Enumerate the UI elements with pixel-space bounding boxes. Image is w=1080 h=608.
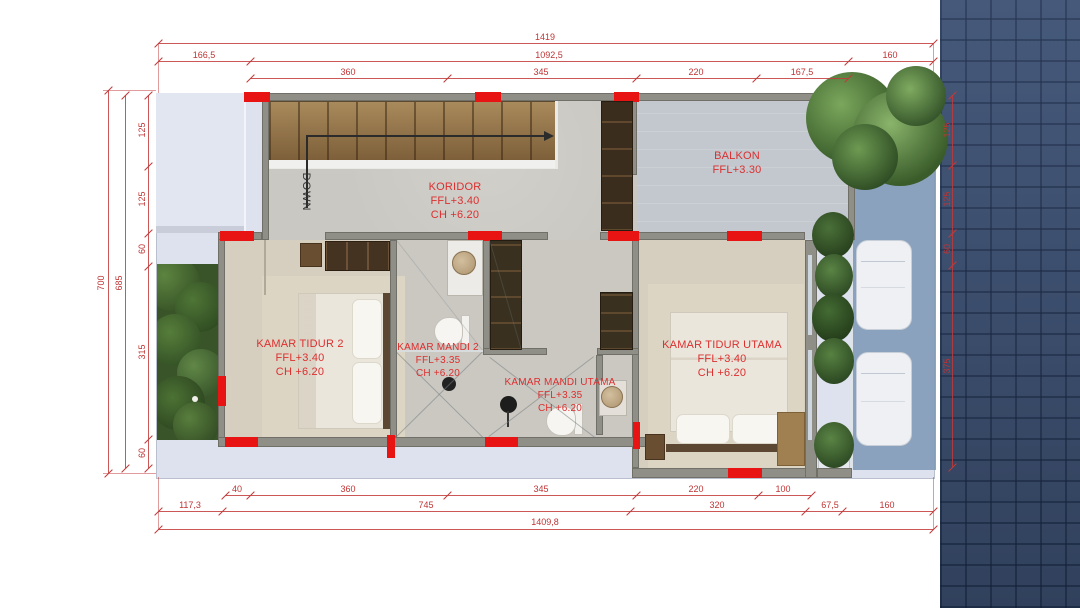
column-marker bbox=[244, 92, 270, 102]
dim-label: 1092,5 bbox=[535, 50, 563, 60]
dim-line bbox=[148, 95, 149, 468]
wall-bd2-bath bbox=[390, 240, 397, 437]
stair-down-label: DOWN bbox=[300, 170, 312, 214]
dim-line bbox=[108, 90, 109, 473]
dim-label: 125 bbox=[137, 191, 147, 206]
dim-extension bbox=[933, 477, 934, 529]
dim-label: 360 bbox=[340, 67, 355, 77]
door-leaf-bedroom2 bbox=[264, 240, 266, 295]
dim-extension bbox=[103, 473, 156, 474]
dim-label: 1409,8 bbox=[531, 517, 559, 527]
dim-line bbox=[158, 529, 933, 530]
tree-canopy bbox=[832, 124, 898, 190]
master-bench bbox=[777, 412, 805, 466]
dim-label: 360 bbox=[340, 484, 355, 494]
column-marker bbox=[225, 437, 258, 447]
dim-label: 320 bbox=[709, 500, 724, 510]
dim-line bbox=[158, 511, 933, 512]
dim-label: 117,3 bbox=[179, 500, 201, 510]
wall-stairs-left bbox=[262, 97, 269, 240]
dim-label: 60 bbox=[137, 244, 147, 254]
room-label-balkon: BALKONFFL+3.30 bbox=[677, 149, 797, 177]
column-marker bbox=[220, 231, 254, 241]
dim-label: 685 bbox=[114, 275, 124, 290]
column-marker bbox=[218, 376, 226, 406]
bedroom2-nightstand bbox=[300, 243, 322, 267]
dim-label: 125 bbox=[942, 122, 952, 137]
dim-label: 167,5 bbox=[791, 67, 814, 77]
bath2-basin bbox=[452, 251, 476, 275]
dim-line bbox=[158, 61, 933, 62]
bedroom2-wardrobe bbox=[325, 241, 390, 271]
column-marker bbox=[387, 435, 395, 458]
dim-label: 375 bbox=[942, 358, 952, 373]
dim-label: 125 bbox=[942, 191, 952, 206]
dim-line bbox=[225, 495, 811, 496]
pool-stone-tiles bbox=[940, 0, 1080, 608]
column-marker bbox=[728, 468, 762, 478]
wall-bottom-left bbox=[218, 437, 650, 447]
dim-label: 315 bbox=[137, 344, 147, 359]
wall-top bbox=[244, 93, 855, 101]
dim-label: 160 bbox=[882, 50, 897, 60]
dim-label: 700 bbox=[96, 275, 106, 290]
closet-2 bbox=[600, 292, 633, 350]
dim-label: 125 bbox=[137, 122, 147, 137]
column-marker bbox=[475, 92, 501, 102]
master-pillow bbox=[676, 414, 730, 444]
dim-label: 160 bbox=[879, 500, 894, 510]
stair-arrowhead bbox=[544, 131, 554, 141]
floor-plan-canvas: DOWN bbox=[0, 0, 1080, 608]
room-label-kamar-mandi-2: KAMAR MANDI 2FFL+3.35CH +6.20 bbox=[375, 341, 501, 380]
pool-hedge bbox=[812, 176, 854, 468]
dim-line bbox=[158, 43, 933, 44]
dim-label: 166,5 bbox=[193, 50, 216, 60]
dim-label: 67,5 bbox=[821, 500, 839, 510]
dim-label: 60 bbox=[942, 244, 952, 254]
wall-master-bottom bbox=[632, 468, 817, 478]
dim-label: 220 bbox=[688, 484, 703, 494]
column-marker bbox=[633, 422, 640, 449]
pool-lounger bbox=[856, 352, 912, 446]
dim-label: 345 bbox=[533, 67, 548, 77]
dim-label: 100 bbox=[775, 484, 790, 494]
dim-label: 220 bbox=[688, 67, 703, 77]
deck-upper-left bbox=[156, 93, 246, 232]
wall-mid-b bbox=[325, 232, 548, 240]
room-label-kamar-mandi-utama: KAMAR MANDI UTAMAFFL+3.35CH +6.20 bbox=[475, 376, 645, 415]
tree-canopy bbox=[886, 66, 946, 126]
koridor-cabinet bbox=[601, 101, 633, 231]
garden-light-dot bbox=[192, 396, 198, 402]
master-headboard bbox=[666, 444, 792, 452]
dim-extension bbox=[933, 43, 934, 93]
room-label-kamar-tidur-2: KAMAR TIDUR 2FFL+3.40CH +6.20 bbox=[215, 337, 385, 379]
dim-label: 60 bbox=[137, 448, 147, 458]
column-marker bbox=[485, 437, 518, 447]
room-label-koridor: KORIDORFFL+3.40CH +6.20 bbox=[385, 180, 525, 222]
dim-label: 745 bbox=[418, 500, 433, 510]
stair-arrow-horizontal bbox=[306, 135, 544, 137]
left-garden bbox=[157, 264, 222, 440]
wall-planter-bottom bbox=[817, 468, 852, 478]
staircase bbox=[266, 97, 558, 169]
dim-line bbox=[250, 78, 848, 79]
dim-label: 1419 bbox=[535, 32, 555, 42]
column-marker bbox=[727, 231, 762, 241]
dim-line bbox=[125, 95, 126, 468]
pool-lounger bbox=[856, 240, 912, 330]
dim-line bbox=[952, 95, 953, 467]
column-marker bbox=[608, 231, 639, 241]
dim-extension bbox=[158, 477, 159, 529]
dim-extension bbox=[158, 43, 159, 93]
dim-label: 345 bbox=[533, 484, 548, 494]
room-label-kamar-tidur-utama: KAMAR TIDUR UTAMAFFL+3.40CH +6.20 bbox=[637, 338, 807, 380]
master-nightstand bbox=[645, 434, 665, 460]
wall-bath-closet bbox=[483, 240, 490, 352]
dim-label: 40 bbox=[232, 484, 242, 494]
